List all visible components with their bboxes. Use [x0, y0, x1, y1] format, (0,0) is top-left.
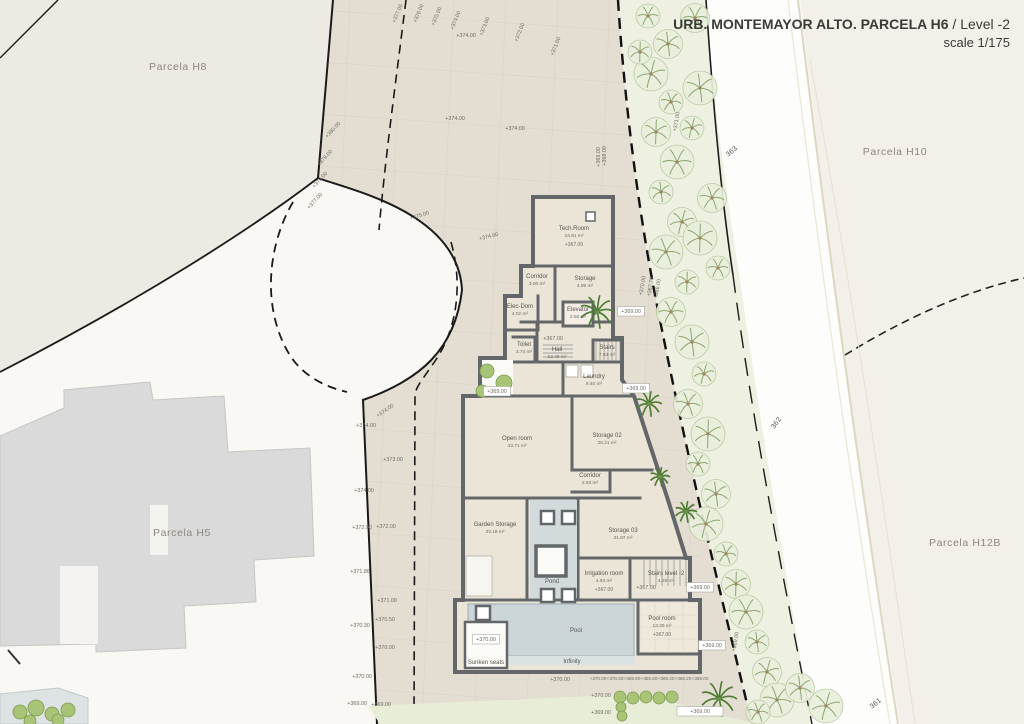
elevation-marker: +370.00	[375, 645, 395, 651]
plan-level: Level -2	[960, 16, 1010, 32]
elevation-marker: +370.00	[550, 677, 570, 683]
elevation-marker: +367.00	[636, 585, 656, 591]
tree-icon	[702, 480, 731, 509]
tree-icon	[729, 595, 763, 629]
elevation-marker: +369.00	[487, 389, 507, 395]
elevation-marker: +370.50	[375, 617, 395, 623]
pond-basin	[536, 546, 566, 576]
tree-icon	[675, 270, 699, 294]
elevation-marker: +372.90	[352, 525, 372, 531]
title-separator: /	[952, 16, 956, 32]
elevation-marker: +367.00	[543, 336, 563, 342]
elevation-marker: +369.00	[702, 643, 722, 649]
elevation-marker: +369.00	[621, 309, 641, 315]
elevation-marker: +369.00	[690, 709, 710, 715]
elevation-marker: +373.00	[383, 457, 403, 463]
tree-icon	[680, 116, 704, 140]
bush-icon	[480, 364, 494, 378]
neighbor-building-terrace	[60, 566, 98, 644]
tree-icon	[683, 71, 717, 105]
elevation-marker: +368.00	[602, 146, 608, 166]
elevation-marker: +374.00	[445, 116, 465, 122]
tree-icon	[746, 700, 770, 724]
garden-storage-closet	[466, 556, 492, 596]
elevation-marker: +370.00	[591, 693, 611, 699]
bush-icon	[653, 692, 665, 704]
elevation-marker: +370.00	[476, 637, 496, 643]
tree-icon	[675, 325, 709, 359]
bush-icon	[666, 691, 678, 703]
bush-icon	[52, 714, 64, 724]
tree-icon	[683, 221, 717, 255]
elevation-marker: +371.00	[377, 598, 397, 604]
tree-icon	[714, 542, 738, 566]
bush-icon	[13, 705, 27, 719]
elevation-marker: +374.00	[354, 488, 374, 494]
room-label: Infinity	[563, 659, 580, 665]
elevation-marker: +369.00	[371, 702, 391, 708]
tree-icon	[691, 417, 725, 451]
elevation-marker: +369.00	[347, 701, 367, 707]
tree-icon	[628, 40, 652, 64]
plan-title: URB. MONTEMAYOR ALTO. PARCELA H6	[673, 16, 948, 32]
bush-icon	[614, 691, 626, 703]
elevation-marker: +369.40	[658, 676, 675, 681]
tree-icon	[722, 570, 751, 599]
elevation-marker: +370.00	[607, 676, 624, 681]
elevation-marker: +372.00	[376, 524, 396, 530]
tree-icon	[786, 674, 815, 703]
bush-icon	[61, 703, 75, 717]
elevation-marker: +370.00	[352, 674, 372, 680]
tree-icon	[745, 630, 769, 654]
bush-icon	[28, 700, 44, 716]
elevation-marker: +369.20	[675, 676, 692, 681]
tree-icon	[698, 184, 727, 213]
parcel-label: Parcela H12B	[929, 537, 1001, 549]
tree-icon	[660, 145, 694, 179]
plan-title-line: URB. MONTEMAYOR ALTO. PARCELA H6 / Level…	[673, 16, 1010, 32]
bush-icon	[627, 692, 639, 704]
title-block: URB. MONTEMAYOR ALTO. PARCELA H6 / Level…	[673, 16, 1010, 50]
tree-icon	[636, 4, 660, 28]
parcel-label: Parcela H10	[863, 146, 927, 158]
tree-icon	[659, 90, 683, 114]
elevation-marker: +374.00	[356, 423, 376, 429]
tree-icon	[649, 180, 673, 204]
elevation-marker: +369.00	[692, 676, 709, 681]
room-label: Pond	[545, 579, 559, 585]
tree-icon	[686, 452, 710, 476]
elevation-marker: +369.90	[624, 676, 641, 681]
parcel-label: Parcela H8	[149, 61, 207, 73]
elevation-marker: +369.60	[641, 676, 658, 681]
bush-icon	[24, 715, 36, 724]
elevation-marker: +370.30	[350, 623, 370, 629]
tree-icon	[689, 507, 723, 541]
bush-icon	[640, 691, 652, 703]
elevation-marker: +369.00	[690, 585, 710, 591]
site-plan-drawing: +377.00+376.00+375.00+374.00+373.00+372.…	[0, 0, 1024, 724]
room-label: Pool	[570, 628, 582, 634]
elevation-marker: +369.00	[591, 710, 611, 716]
tree-icon	[706, 256, 730, 280]
tree-icon	[657, 298, 686, 327]
bush-icon	[616, 702, 626, 712]
elevation-marker: +369.00	[626, 386, 646, 392]
tree-icon	[809, 689, 843, 723]
room-label: Sunken seats	[468, 660, 504, 666]
elevation-marker: +374.00	[505, 126, 525, 132]
tree-icon	[753, 658, 782, 687]
site-plan-sheet: +377.00+376.00+375.00+374.00+373.00+372.…	[0, 0, 1024, 724]
elevation-marker: +370.00	[590, 676, 607, 681]
parcel-label: Parcela H5	[153, 527, 211, 539]
elevation-marker: +371.86	[350, 569, 370, 575]
tree-icon	[649, 235, 683, 269]
tree-icon	[692, 362, 716, 386]
elevation-marker: +374.00	[456, 33, 476, 39]
tree-icon	[642, 118, 671, 147]
plan-scale: scale 1/175	[673, 35, 1010, 50]
tree-icon	[674, 390, 703, 419]
bush-icon	[617, 711, 627, 721]
